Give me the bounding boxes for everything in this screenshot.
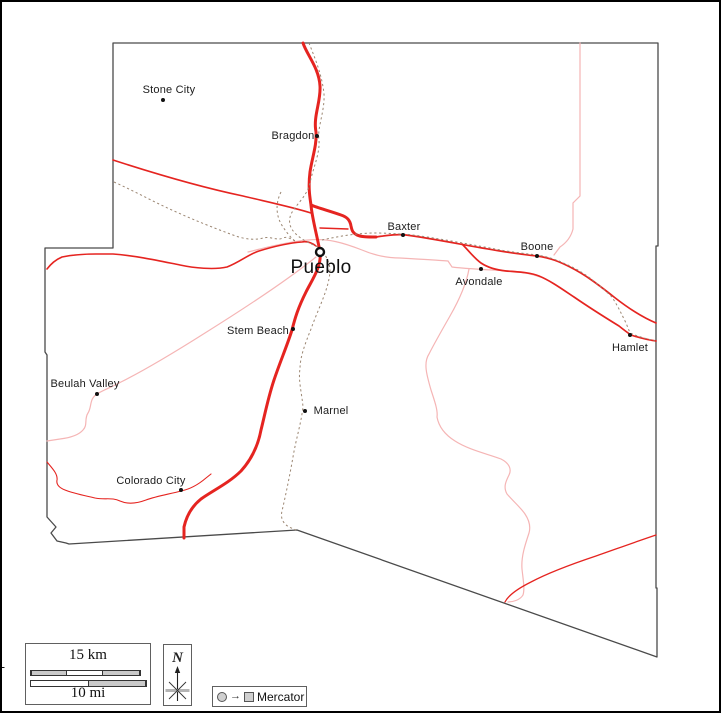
city-label-colorado-city: Colorado City [116, 475, 185, 487]
city-dot-stem-beach [291, 327, 295, 331]
city-dot-stone-city [161, 98, 165, 102]
city-marker-pueblo [316, 248, 324, 256]
city-label-pueblo: Pueblo [291, 257, 352, 279]
compass-box: N [163, 644, 192, 706]
circle-icon [217, 692, 227, 702]
city-label-boone: Boone [521, 241, 554, 253]
city-dot-colorado-city [179, 488, 183, 492]
city-dot-bragdon [315, 134, 319, 138]
square-icon [244, 692, 254, 702]
compass-rose-icon: N [164, 645, 191, 705]
city-dot-hamlet [628, 333, 632, 337]
projection-legend: → Mercator [212, 686, 307, 707]
city-label-bragdon: Bragdon [272, 130, 315, 142]
svg-text:N: N [171, 650, 184, 666]
map-canvas: Stone City Bragdon Baxter Boone Avondale… [0, 0, 721, 713]
city-label-stone-city: Stone City [143, 84, 196, 96]
scale-bar-km [30, 670, 141, 676]
projection-label: Mercator [257, 690, 304, 704]
road-medium-short [320, 228, 348, 229]
scale-segment [102, 671, 140, 675]
county-map [2, 2, 719, 711]
scale-mi-label: 10 mi [26, 685, 150, 702]
city-dot-marnel [303, 409, 307, 413]
scale-bar-box: 15 km 10 mi [25, 643, 151, 705]
city-label-avondale: Avondale [455, 276, 502, 288]
city-dot-beulah-valley [95, 392, 99, 396]
city-label-beulah-valley: Beulah Valley [50, 378, 119, 390]
copyright-text: © d-maps.com [0, 633, 5, 705]
city-label-marnel: Marnel [314, 405, 349, 417]
scale-km-label: 15 km [26, 647, 150, 664]
city-label-stem-beach: Stem Beach [227, 325, 289, 337]
scale-segment [31, 671, 67, 675]
city-dot-baxter [401, 233, 405, 237]
scale-segment [67, 671, 102, 675]
city-dot-boone [535, 254, 539, 258]
county-boundary [45, 43, 658, 657]
city-dot-avondale [479, 267, 483, 271]
city-label-hamlet: Hamlet [612, 342, 648, 354]
city-label-baxter: Baxter [388, 221, 421, 233]
arrow-right-icon: → [230, 691, 241, 702]
